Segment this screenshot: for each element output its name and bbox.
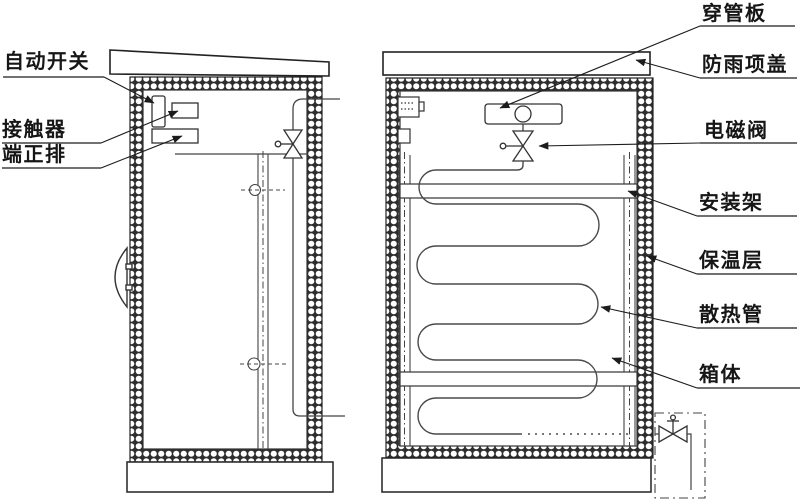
phantom-box	[655, 413, 705, 498]
label-terminal-strip: 端正排	[2, 143, 67, 165]
label-mounting-frame: 安装架	[699, 191, 764, 213]
terminal-strip-device	[152, 129, 198, 143]
label-insulation-layer: 保温层	[699, 249, 764, 271]
external-valve-symbol	[659, 415, 687, 442]
label-auto-switch: 自动开关	[4, 50, 90, 72]
wall-device-2	[398, 129, 410, 143]
drawing-canvas	[0, 0, 800, 504]
label-contactor: 接触器	[2, 118, 67, 140]
label-rain-cover: 防雨项盖	[702, 53, 788, 75]
pipe-through-plate	[485, 104, 562, 124]
right-cabinet-interior	[400, 91, 637, 446]
label-cabinet-body: 箱体	[699, 363, 742, 385]
label-pipe-through-plate: 穿管板	[702, 2, 767, 24]
external-valve-pipe	[655, 434, 691, 490]
label-solenoid-valve: 电磁阀	[704, 119, 769, 141]
external-valve-assembly	[655, 413, 705, 498]
mounting-frame-bar-top	[400, 184, 637, 198]
left-base-plinth	[127, 462, 333, 492]
right-base-plinth	[382, 458, 651, 492]
auto-switch-device	[152, 96, 165, 127]
left-cabinet	[110, 50, 345, 492]
leader-insulation	[647, 256, 697, 274]
label-heat-pipe: 散热管	[699, 303, 764, 325]
technical-diagram: 自动开关 接触器 端正排 穿管板 防雨项盖 电磁阀 安装架 保温层 散热管 箱体	[0, 0, 800, 504]
right-cabinet	[382, 52, 653, 492]
mounting-frame-bar-bottom	[400, 372, 637, 386]
contactor-device	[172, 103, 198, 118]
left-rain-cover-shape	[110, 50, 329, 76]
